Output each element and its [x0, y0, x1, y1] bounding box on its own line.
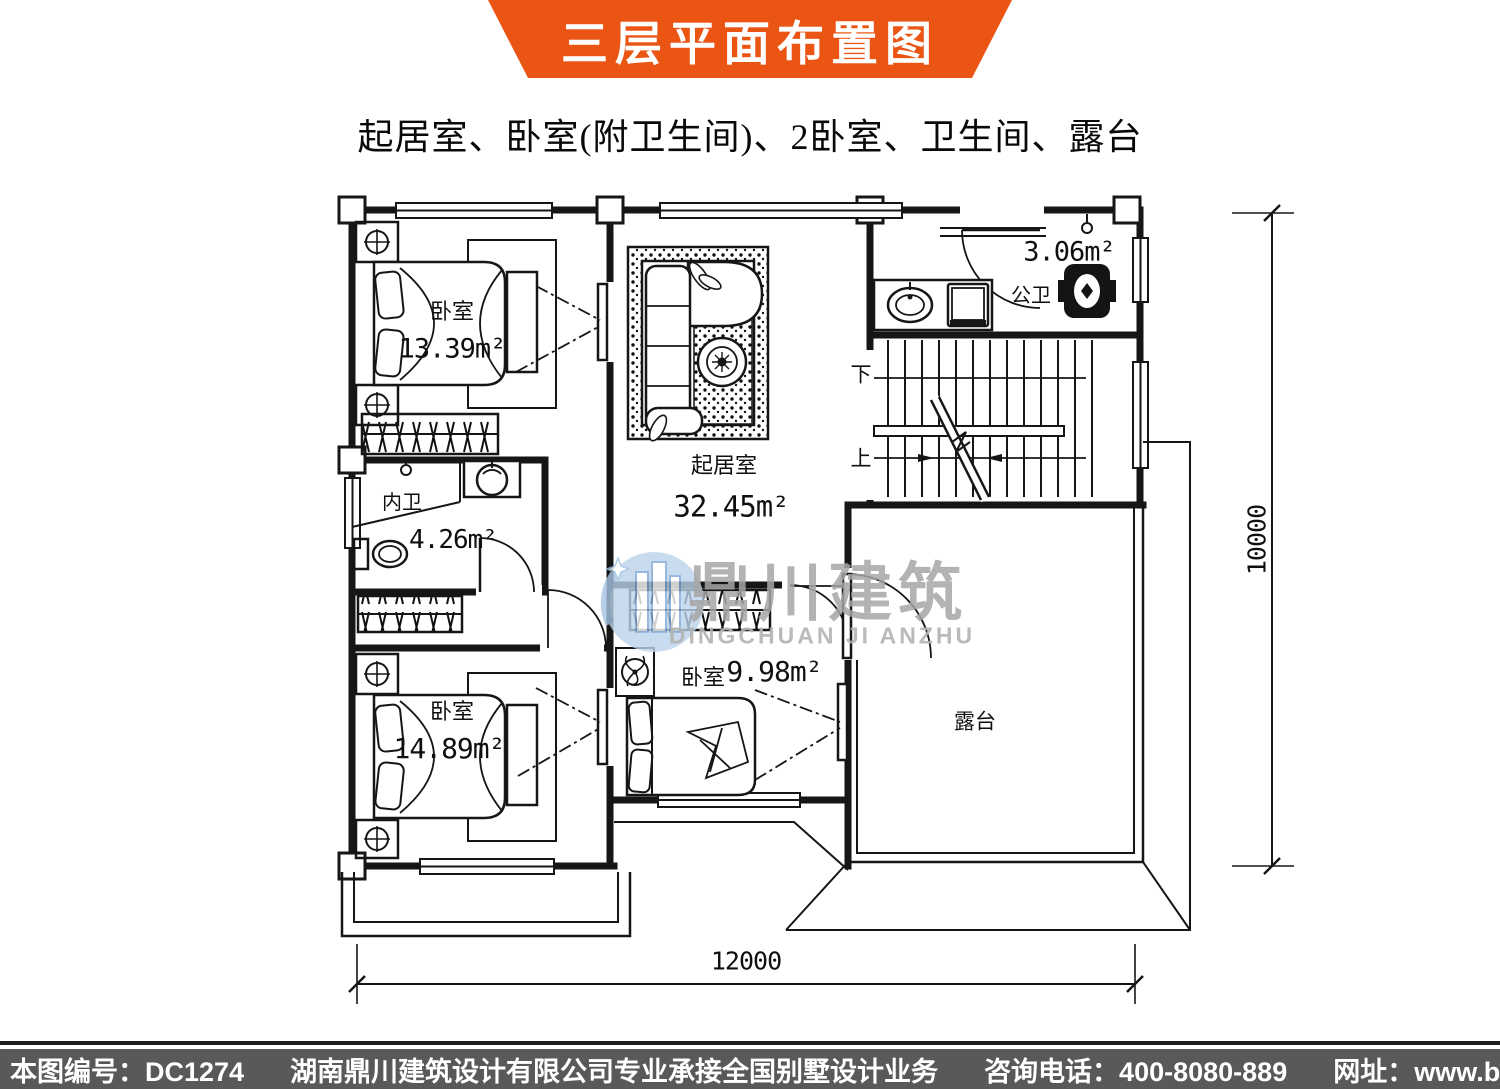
living-room-furniture — [628, 247, 768, 443]
stair-up-label: 上 — [851, 449, 872, 470]
floor-plan-drawing: 卧室 13.39m² 3.06m² 公卫 起居室 32.45m² 内卫 4.26… — [0, 0, 1500, 1089]
room-area-living: 32.45m² — [673, 493, 788, 522]
room-label-bedroom-middle: 卧室 — [681, 667, 725, 689]
room-label-bath-public: 公卫 — [1011, 286, 1051, 306]
room-area-bedroom-top-left: 13.39m² — [399, 336, 506, 363]
room-area-bedroom-bottom-left: 14.89m² — [393, 735, 504, 763]
footer-company: 湖南鼎川建筑设计有限公司专业承接全国别墅设计业务 — [290, 1050, 938, 1089]
footer-bar: 本图编号：DC1274 湖南鼎川建筑设计有限公司专业承接全国别墅设计业务 咨询电… — [0, 1049, 1500, 1089]
room-label-bath-ensuite: 内卫 — [382, 493, 422, 513]
room-label-bedroom-top-left: 卧室 — [430, 301, 474, 323]
footer-website: 网址：www.bstzcs.com — [1333, 1050, 1500, 1089]
footer-drawing-number: 本图编号：DC1274 — [10, 1050, 244, 1089]
footer-phone: 咨询电话：400-8080-889 — [984, 1050, 1287, 1089]
balcony-eave-left — [342, 872, 630, 936]
terrace-door — [843, 574, 931, 658]
room-area-bedroom-middle: 9.98m² — [726, 658, 821, 686]
page: 三层平面布置图 起居室、卧室(附卫生间)、2卧室、卫生间、露台 — [0, 0, 1500, 1089]
room-label-bedroom-bottom-left: 卧室 — [430, 701, 474, 723]
room-area-bath-public: 3.06m² — [1023, 239, 1115, 266]
floor-plan-svg — [0, 0, 1500, 1089]
room-label-living: 起居室 — [691, 455, 757, 477]
footer-divider — [0, 1041, 1500, 1045]
staircase — [874, 340, 1092, 500]
dimension-height-label: 10000 — [1245, 505, 1270, 575]
room-label-terrace: 露台 — [954, 712, 996, 733]
stair-down-label: 下 — [851, 365, 872, 386]
dimension-width-label: 12000 — [711, 949, 781, 974]
public-bathroom-fixtures — [874, 214, 1116, 330]
room-area-bath-ensuite: 4.26m² — [409, 527, 497, 553]
bedroom-top-left-furniture — [356, 222, 607, 425]
